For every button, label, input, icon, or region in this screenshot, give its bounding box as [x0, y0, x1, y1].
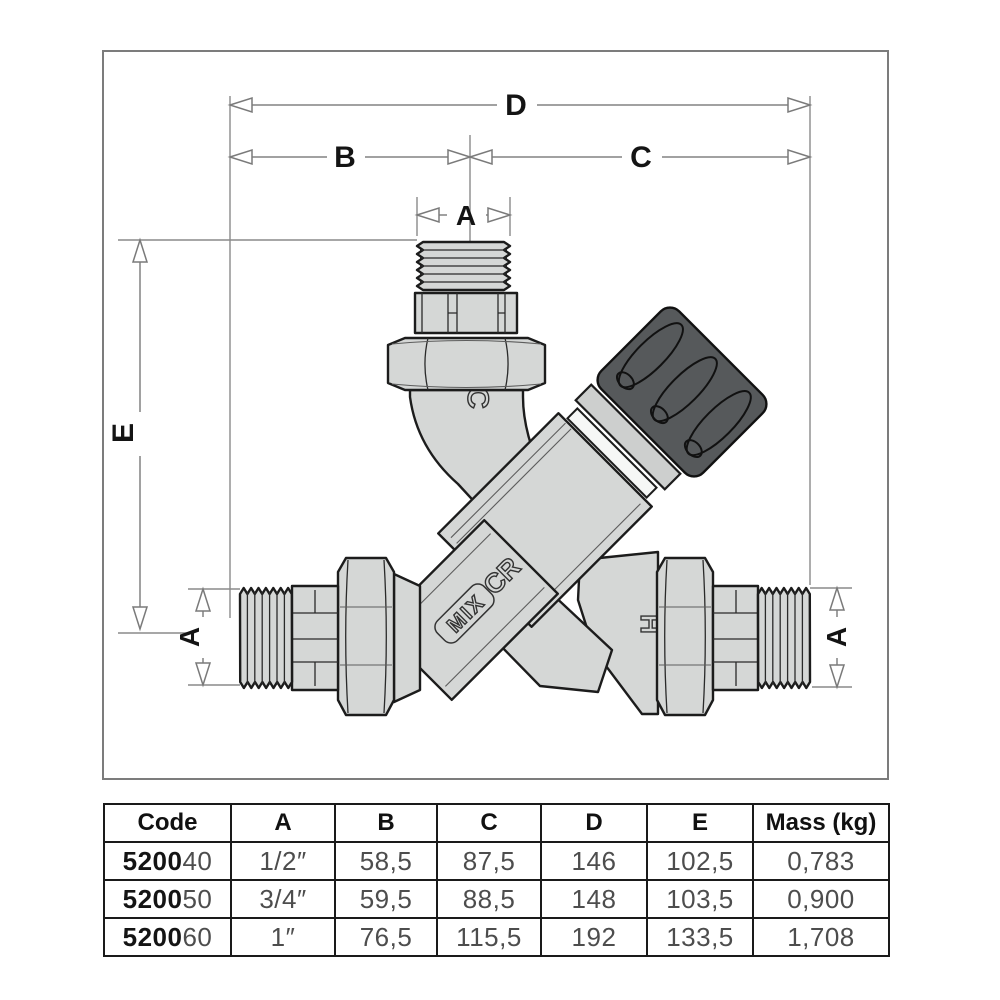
- dim-label-a-top: A: [456, 200, 476, 231]
- dim-label-d: D: [505, 89, 527, 122]
- right-male-thread: [758, 588, 810, 688]
- cell-mass: 1,708: [753, 918, 889, 956]
- specification-table: Code A B C D E Mass (kg) 520040 1/2″ 58,…: [103, 803, 890, 957]
- left-male-thread: [240, 588, 292, 688]
- dim-label-b: B: [334, 141, 356, 174]
- left-union-nut: [338, 558, 394, 715]
- dim-label-e: E: [107, 423, 140, 443]
- header-code: Code: [104, 804, 231, 842]
- cell-e: 103,5: [647, 880, 753, 918]
- code-prefix: 5200: [123, 846, 183, 876]
- header-c: C: [437, 804, 541, 842]
- code-prefix: 5200: [123, 922, 183, 952]
- cell-e: 133,5: [647, 918, 753, 956]
- cell-b: 59,5: [335, 880, 437, 918]
- code-suffix: 40: [182, 846, 212, 876]
- cell-code: 520050: [104, 880, 231, 918]
- technical-datasheet: D B C A E: [0, 0, 1000, 1000]
- table-row: 520050 3/4″ 59,5 88,5 148 103,5 0,900: [104, 880, 889, 918]
- cell-c: 88,5: [437, 880, 541, 918]
- cell-a: 3/4″: [231, 880, 335, 918]
- left-union-cone: [394, 574, 420, 702]
- right-union-nut: [657, 558, 713, 715]
- cell-a: 1″: [231, 918, 335, 956]
- left-tailpiece: [292, 586, 338, 690]
- cell-c: 87,5: [437, 842, 541, 880]
- cell-code: 520040: [104, 842, 231, 880]
- table-header-row: Code A B C D E Mass (kg): [104, 804, 889, 842]
- right-tailpiece: [713, 586, 758, 690]
- cell-b: 76,5: [335, 918, 437, 956]
- code-suffix: 60: [182, 922, 212, 952]
- header-e: E: [647, 804, 753, 842]
- header-b: B: [335, 804, 437, 842]
- cell-d: 146: [541, 842, 647, 880]
- cell-c: 115,5: [437, 918, 541, 956]
- cell-b: 58,5: [335, 842, 437, 880]
- top-union-nut: [388, 338, 545, 390]
- header-mass: Mass (kg): [753, 804, 889, 842]
- cell-a: 1/2″: [231, 842, 335, 880]
- code-prefix: 5200: [123, 884, 183, 914]
- cell-d: 192: [541, 918, 647, 956]
- dim-label-c: C: [630, 141, 652, 174]
- dim-label-a-left: A: [174, 627, 205, 647]
- cell-mass: 0,900: [753, 880, 889, 918]
- header-a: A: [231, 804, 335, 842]
- top-tailpiece: [415, 293, 517, 333]
- dim-label-a-right: A: [821, 627, 852, 647]
- code-suffix: 50: [182, 884, 212, 914]
- cell-e: 102,5: [647, 842, 753, 880]
- header-d: D: [541, 804, 647, 842]
- table-row: 520060 1″ 76,5 115,5 192 133,5 1,708: [104, 918, 889, 956]
- cell-d: 148: [541, 880, 647, 918]
- cell-mass: 0,783: [753, 842, 889, 880]
- cell-code: 520060: [104, 918, 231, 956]
- table-row: 520040 1/2″ 58,5 87,5 146 102,5 0,783: [104, 842, 889, 880]
- top-male-thread: [417, 242, 510, 290]
